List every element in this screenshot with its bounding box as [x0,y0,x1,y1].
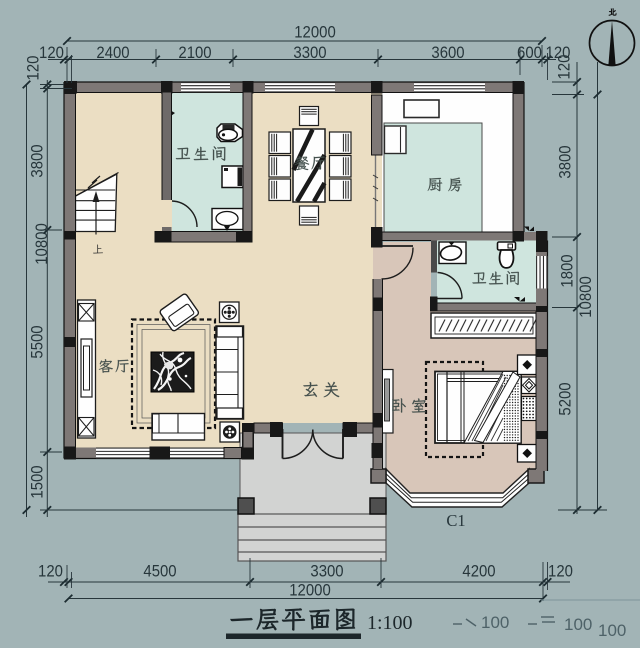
svg-text:120: 120 [556,55,574,80]
svg-text:12000: 12000 [294,24,336,42]
svg-text:2100: 2100 [178,44,211,62]
svg-text:3600: 3600 [431,44,464,62]
svg-text:120: 120 [25,56,43,81]
svg-text:4200: 4200 [462,563,495,581]
svg-text:3300: 3300 [293,44,326,62]
svg-text:5200: 5200 [557,382,575,415]
svg-text:1500: 1500 [29,465,47,498]
svg-text:100: 100 [598,621,626,640]
svg-text:2400: 2400 [96,44,129,62]
svg-text:100: 100 [481,613,509,632]
svg-text:120: 120 [39,44,64,62]
svg-text:1:100: 1:100 [367,612,413,634]
svg-text:12000: 12000 [289,582,331,600]
svg-text:120: 120 [548,563,573,581]
svg-text:10800: 10800 [577,276,595,318]
svg-text:5500: 5500 [29,325,47,358]
svg-text:120: 120 [38,563,63,581]
svg-text:3800: 3800 [29,144,47,177]
svg-text:3800: 3800 [557,145,575,178]
svg-text:100: 100 [564,615,592,634]
svg-text:1800: 1800 [559,254,577,287]
svg-text:600: 600 [517,44,542,62]
svg-text:4500: 4500 [143,563,176,581]
svg-text:3300: 3300 [310,563,343,581]
svg-text:C1: C1 [446,511,465,530]
